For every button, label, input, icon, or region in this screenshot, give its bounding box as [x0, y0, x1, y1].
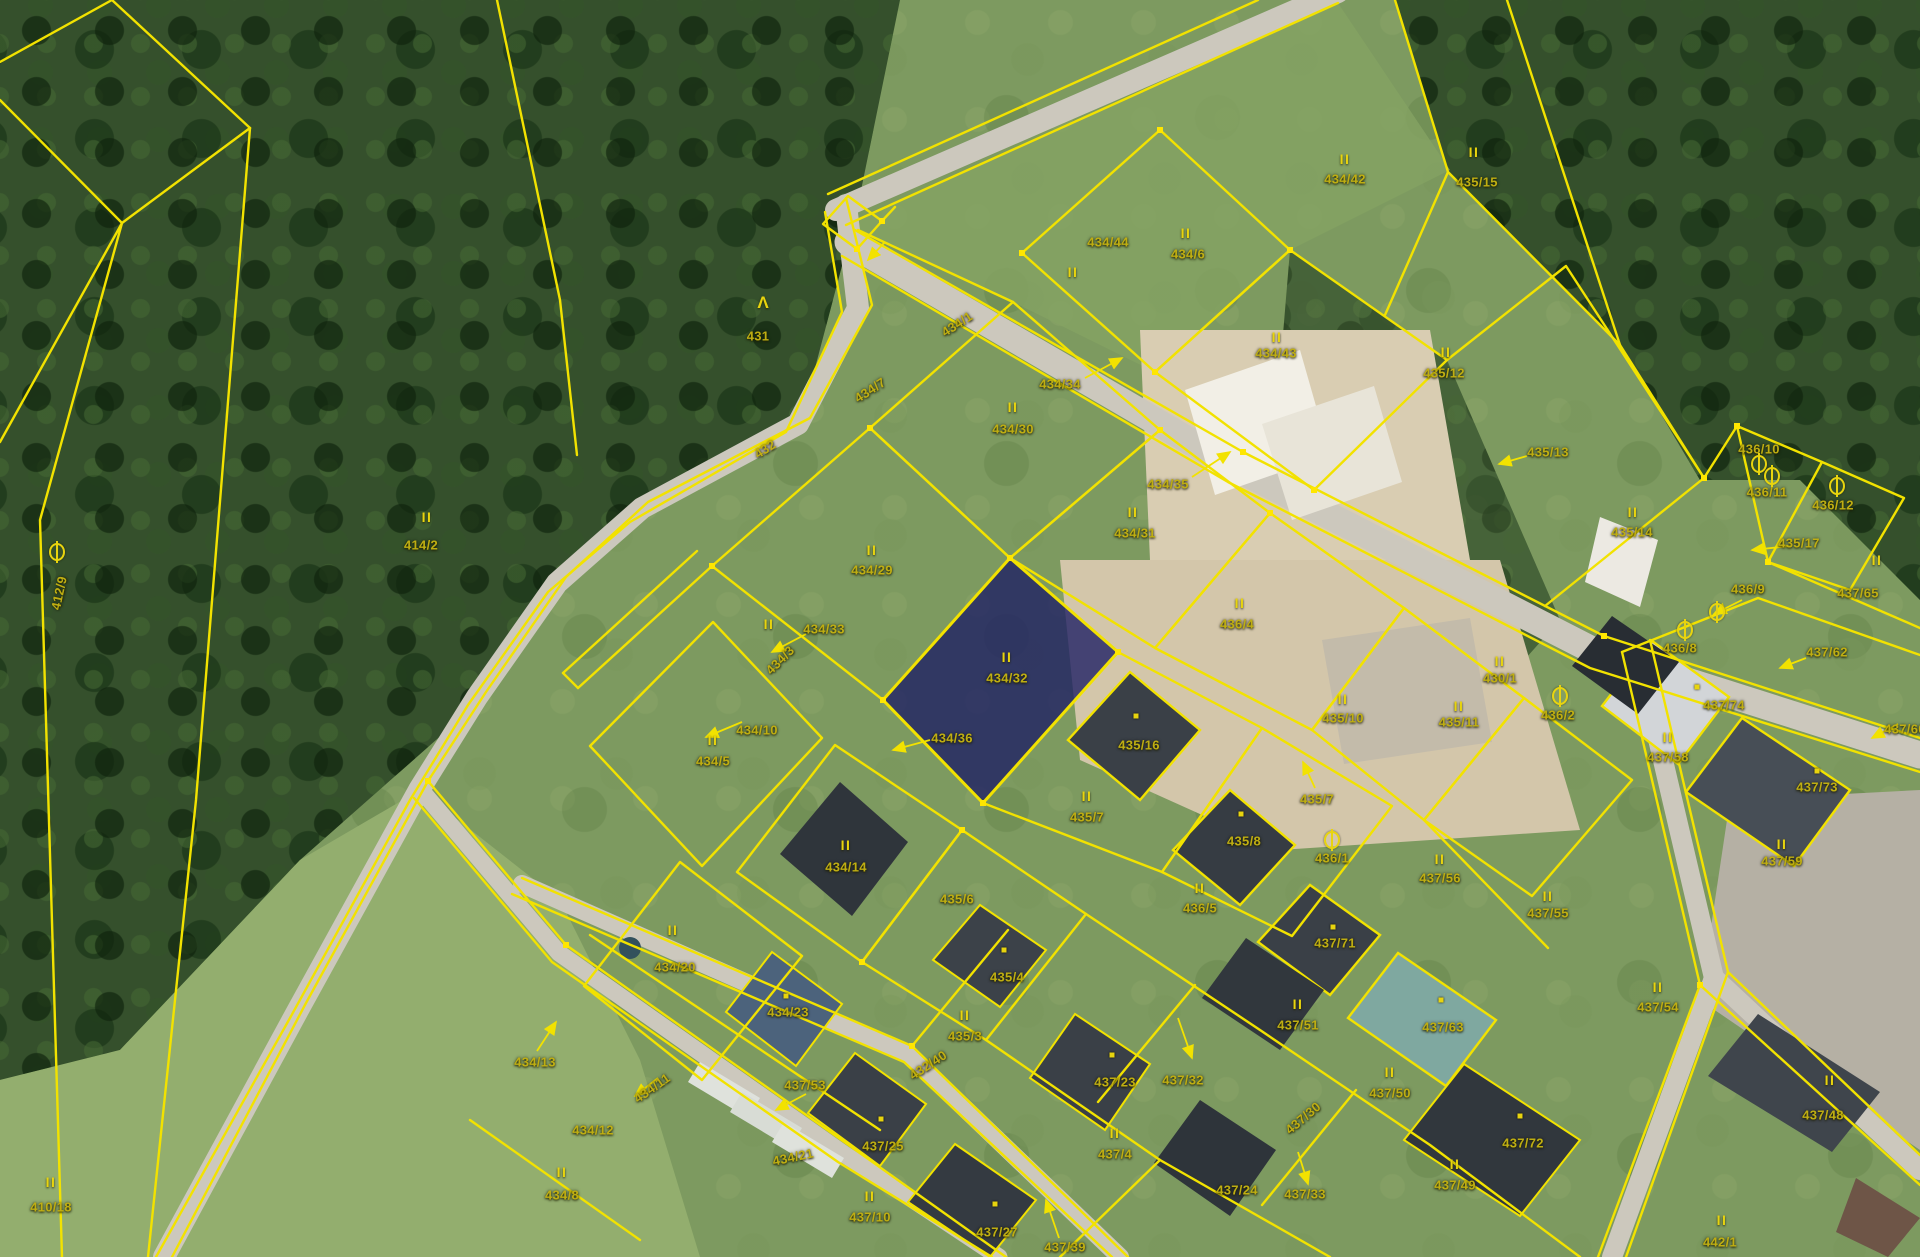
- parcel-label: 437/74: [1703, 698, 1745, 713]
- parcel-label: 437/59: [1761, 854, 1803, 869]
- land-use-ii-symbol: II: [422, 509, 433, 525]
- land-use-ii-symbol: II: [1435, 851, 1446, 867]
- building-dot-symbol: [1331, 925, 1336, 930]
- building-dot-symbol: [1695, 685, 1700, 690]
- parcel-label: 434/31: [1114, 526, 1156, 541]
- parcel-label: 437/4: [1098, 1147, 1132, 1162]
- parcel-label: 430/1: [1483, 671, 1517, 686]
- land-use-ii-symbol: II: [960, 1007, 971, 1023]
- circle-bar-symbol: [1552, 687, 1568, 705]
- parcel-label: 414/2: [404, 538, 438, 553]
- parcel-label: 435/12: [1423, 366, 1465, 381]
- parcel-label: 431: [747, 329, 770, 344]
- parcel-label: 434/30: [992, 422, 1034, 437]
- parcel-label: 435/11: [1439, 715, 1480, 730]
- parcel-label: 437/54: [1637, 1000, 1679, 1015]
- building-dot-symbol: [1518, 1114, 1523, 1119]
- land-use-ii-symbol: II: [1872, 552, 1883, 568]
- parcel-label: 432: [751, 437, 778, 462]
- parcel-label: 434/42: [1324, 172, 1366, 187]
- parcel-label: 434/3: [763, 643, 798, 678]
- parcel-label: 434/36: [931, 731, 973, 746]
- parcel-label: 437/50: [1369, 1086, 1411, 1101]
- parcel-label: 437/30: [1282, 1099, 1323, 1137]
- land-use-ii-symbol: II: [1068, 264, 1079, 280]
- parcel-label: 434/5: [696, 754, 730, 769]
- parcel-label: 437/65: [1837, 586, 1879, 601]
- parcel-label: 435/10: [1322, 711, 1364, 726]
- parcel-label: 434/1: [939, 308, 976, 339]
- building-dot-symbol: [1815, 769, 1820, 774]
- land-use-ii-symbol: II: [1825, 1072, 1836, 1088]
- parcel-label: 437/58: [1647, 750, 1689, 765]
- land-use-ii-symbol: II: [1441, 344, 1452, 360]
- parcel-label: 432/40: [906, 1047, 949, 1082]
- land-use-ii-symbol: II: [1663, 729, 1674, 745]
- building-dot-symbol: [1002, 948, 1007, 953]
- parcel-label: 436/1: [1315, 851, 1349, 866]
- building-dot-symbol: [1239, 812, 1244, 817]
- parcel-label: 437/25: [862, 1139, 904, 1154]
- parcel-label: 436/8: [1663, 641, 1697, 656]
- parcel-label: 435/7: [1070, 810, 1104, 825]
- parcel-label: 434/12: [572, 1123, 614, 1138]
- parcel-label: 437/39: [1044, 1240, 1086, 1255]
- land-use-ii-symbol: II: [1777, 836, 1788, 852]
- parcel-label: 437/72: [1502, 1136, 1544, 1151]
- land-use-ii-symbol: II: [668, 922, 679, 938]
- land-use-ii-symbol: II: [1385, 1064, 1396, 1080]
- land-use-ii-symbol: II: [1450, 1156, 1461, 1172]
- parcel-label: 437/24: [1216, 1183, 1258, 1198]
- land-use-ii-symbol: II: [1454, 698, 1465, 714]
- parcel-label: 437/10: [849, 1210, 891, 1225]
- parcel-label: 434/13: [514, 1055, 556, 1070]
- building-dot-symbol: [1439, 998, 1444, 1003]
- parcel-label: 434/11: [631, 1070, 673, 1106]
- circle-bar-symbol: [1677, 621, 1693, 639]
- map-canvas[interactable]: 431414/2412/9410/18434/44434/6434/42435/…: [0, 0, 1920, 1257]
- building-dot-symbol: [784, 994, 789, 999]
- parcel-label: 437/60: [1884, 722, 1920, 737]
- land-use-ii-symbol: II: [1717, 1212, 1728, 1228]
- parcel-label: 435/7: [1300, 792, 1334, 807]
- parcel-label: 434/7: [852, 374, 889, 405]
- circle-bar-symbol: [1709, 603, 1725, 621]
- parcel-label: 436/4: [1220, 617, 1254, 632]
- land-use-ii-symbol: II: [1128, 504, 1139, 520]
- land-use-ii-symbol: II: [708, 732, 719, 748]
- land-use-ii-symbol: II: [1338, 691, 1349, 707]
- land-use-ii-symbol: II: [764, 616, 775, 632]
- parcel-label: 437/55: [1527, 906, 1569, 921]
- circle-bar-symbol: [1829, 477, 1845, 495]
- land-use-ii-symbol: II: [867, 542, 878, 558]
- parcel-label: 437/53: [784, 1078, 826, 1093]
- parcel-label: 436/5: [1183, 901, 1217, 916]
- parcel-label: 437/27: [976, 1225, 1018, 1240]
- parcel-label: 434/14: [825, 860, 867, 875]
- building-dot-symbol: [1134, 714, 1139, 719]
- circle-bar-symbol: [49, 543, 65, 561]
- parcel-label: 435/13: [1527, 445, 1569, 460]
- parcel-label: 437/63: [1422, 1020, 1464, 1035]
- building-dot-symbol: [993, 1202, 998, 1207]
- land-use-ii-symbol: II: [1181, 225, 1192, 241]
- land-use-ii-symbol: II: [1002, 649, 1013, 665]
- building-dot-symbol: [879, 1117, 884, 1122]
- parcel-label: 434/6: [1171, 247, 1205, 262]
- building-dot-symbol: [1110, 1053, 1115, 1058]
- parcel-label: 437/71: [1314, 936, 1356, 951]
- land-use-ii-symbol: II: [1469, 144, 1480, 160]
- parcel-label: 437/49: [1434, 1178, 1476, 1193]
- land-use-ii-symbol: II: [1272, 329, 1283, 345]
- parcel-label: 437/56: [1419, 871, 1461, 886]
- land-use-ii-symbol: II: [1082, 788, 1093, 804]
- parcel-label: 434/23: [767, 1005, 809, 1020]
- land-use-ii-symbol: II: [1628, 504, 1639, 520]
- parcel-label: 435/3: [948, 1029, 982, 1044]
- parcel-label: 435/6: [940, 892, 974, 907]
- parcel-label: 435/16: [1118, 738, 1160, 753]
- parcel-label: 436/9: [1731, 582, 1765, 597]
- parcel-label: 437/32: [1162, 1073, 1204, 1088]
- land-use-ii-symbol: II: [1653, 979, 1664, 995]
- parcel-label: 434/20: [654, 960, 696, 975]
- land-use-ii-symbol: II: [1110, 1125, 1121, 1141]
- parcel-label: 434/10: [736, 723, 778, 738]
- parcel-label: 434/32: [986, 671, 1028, 686]
- parcel-label: 435/4: [990, 970, 1024, 985]
- labels-layer: 431414/2412/9410/18434/44434/6434/42435/…: [0, 0, 1920, 1257]
- parcel-label: 436/2: [1541, 708, 1575, 723]
- land-use-ii-symbol: II: [1008, 399, 1019, 415]
- land-use-ii-symbol: II: [1340, 151, 1351, 167]
- parcel-label: 434/44: [1087, 235, 1129, 250]
- parcel-label: 412/9: [48, 575, 70, 611]
- parcel-label: 435/14: [1611, 525, 1653, 540]
- land-use-ii-symbol: II: [1543, 888, 1554, 904]
- parcel-label: 435/17: [1778, 536, 1820, 551]
- parcel-label: 437/62: [1806, 645, 1848, 660]
- land-use-ii-symbol: II: [841, 837, 852, 853]
- circle-bar-symbol: [1764, 467, 1780, 485]
- parcel-label: 434/34: [1039, 377, 1081, 392]
- parcel-label: 435/15: [1456, 175, 1498, 190]
- land-use-ii-symbol: II: [1235, 595, 1246, 611]
- land-use-ii-symbol: II: [865, 1188, 876, 1204]
- land-use-ii-symbol: II: [46, 1174, 57, 1190]
- land-use-ii-symbol: II: [1195, 880, 1206, 896]
- parcel-label: 434/33: [803, 622, 845, 637]
- parcel-label: 442/1: [1703, 1235, 1737, 1250]
- parcel-label: 437/48: [1802, 1108, 1844, 1123]
- conifer-symbol: Λ: [757, 293, 768, 313]
- parcel-label: 434/8: [545, 1188, 579, 1203]
- parcel-label: 437/51: [1277, 1018, 1319, 1033]
- parcel-label: 434/29: [851, 563, 893, 578]
- land-use-ii-symbol: II: [1293, 996, 1304, 1012]
- land-use-ii-symbol: II: [1495, 653, 1506, 669]
- parcel-label: 437/33: [1284, 1187, 1326, 1202]
- parcel-label: 434/43: [1255, 346, 1297, 361]
- circle-bar-symbol: [1324, 831, 1340, 849]
- parcel-label: 434/35: [1147, 477, 1189, 492]
- parcel-label: 437/73: [1796, 780, 1838, 795]
- parcel-label: 436/11: [1747, 485, 1788, 500]
- land-use-ii-symbol: II: [557, 1164, 568, 1180]
- parcel-label: 410/18: [30, 1200, 72, 1215]
- parcel-label: 437/23: [1094, 1075, 1136, 1090]
- parcel-label: 435/8: [1227, 834, 1261, 849]
- parcel-label: 436/12: [1812, 498, 1854, 513]
- parcel-label: 434/21: [771, 1145, 815, 1168]
